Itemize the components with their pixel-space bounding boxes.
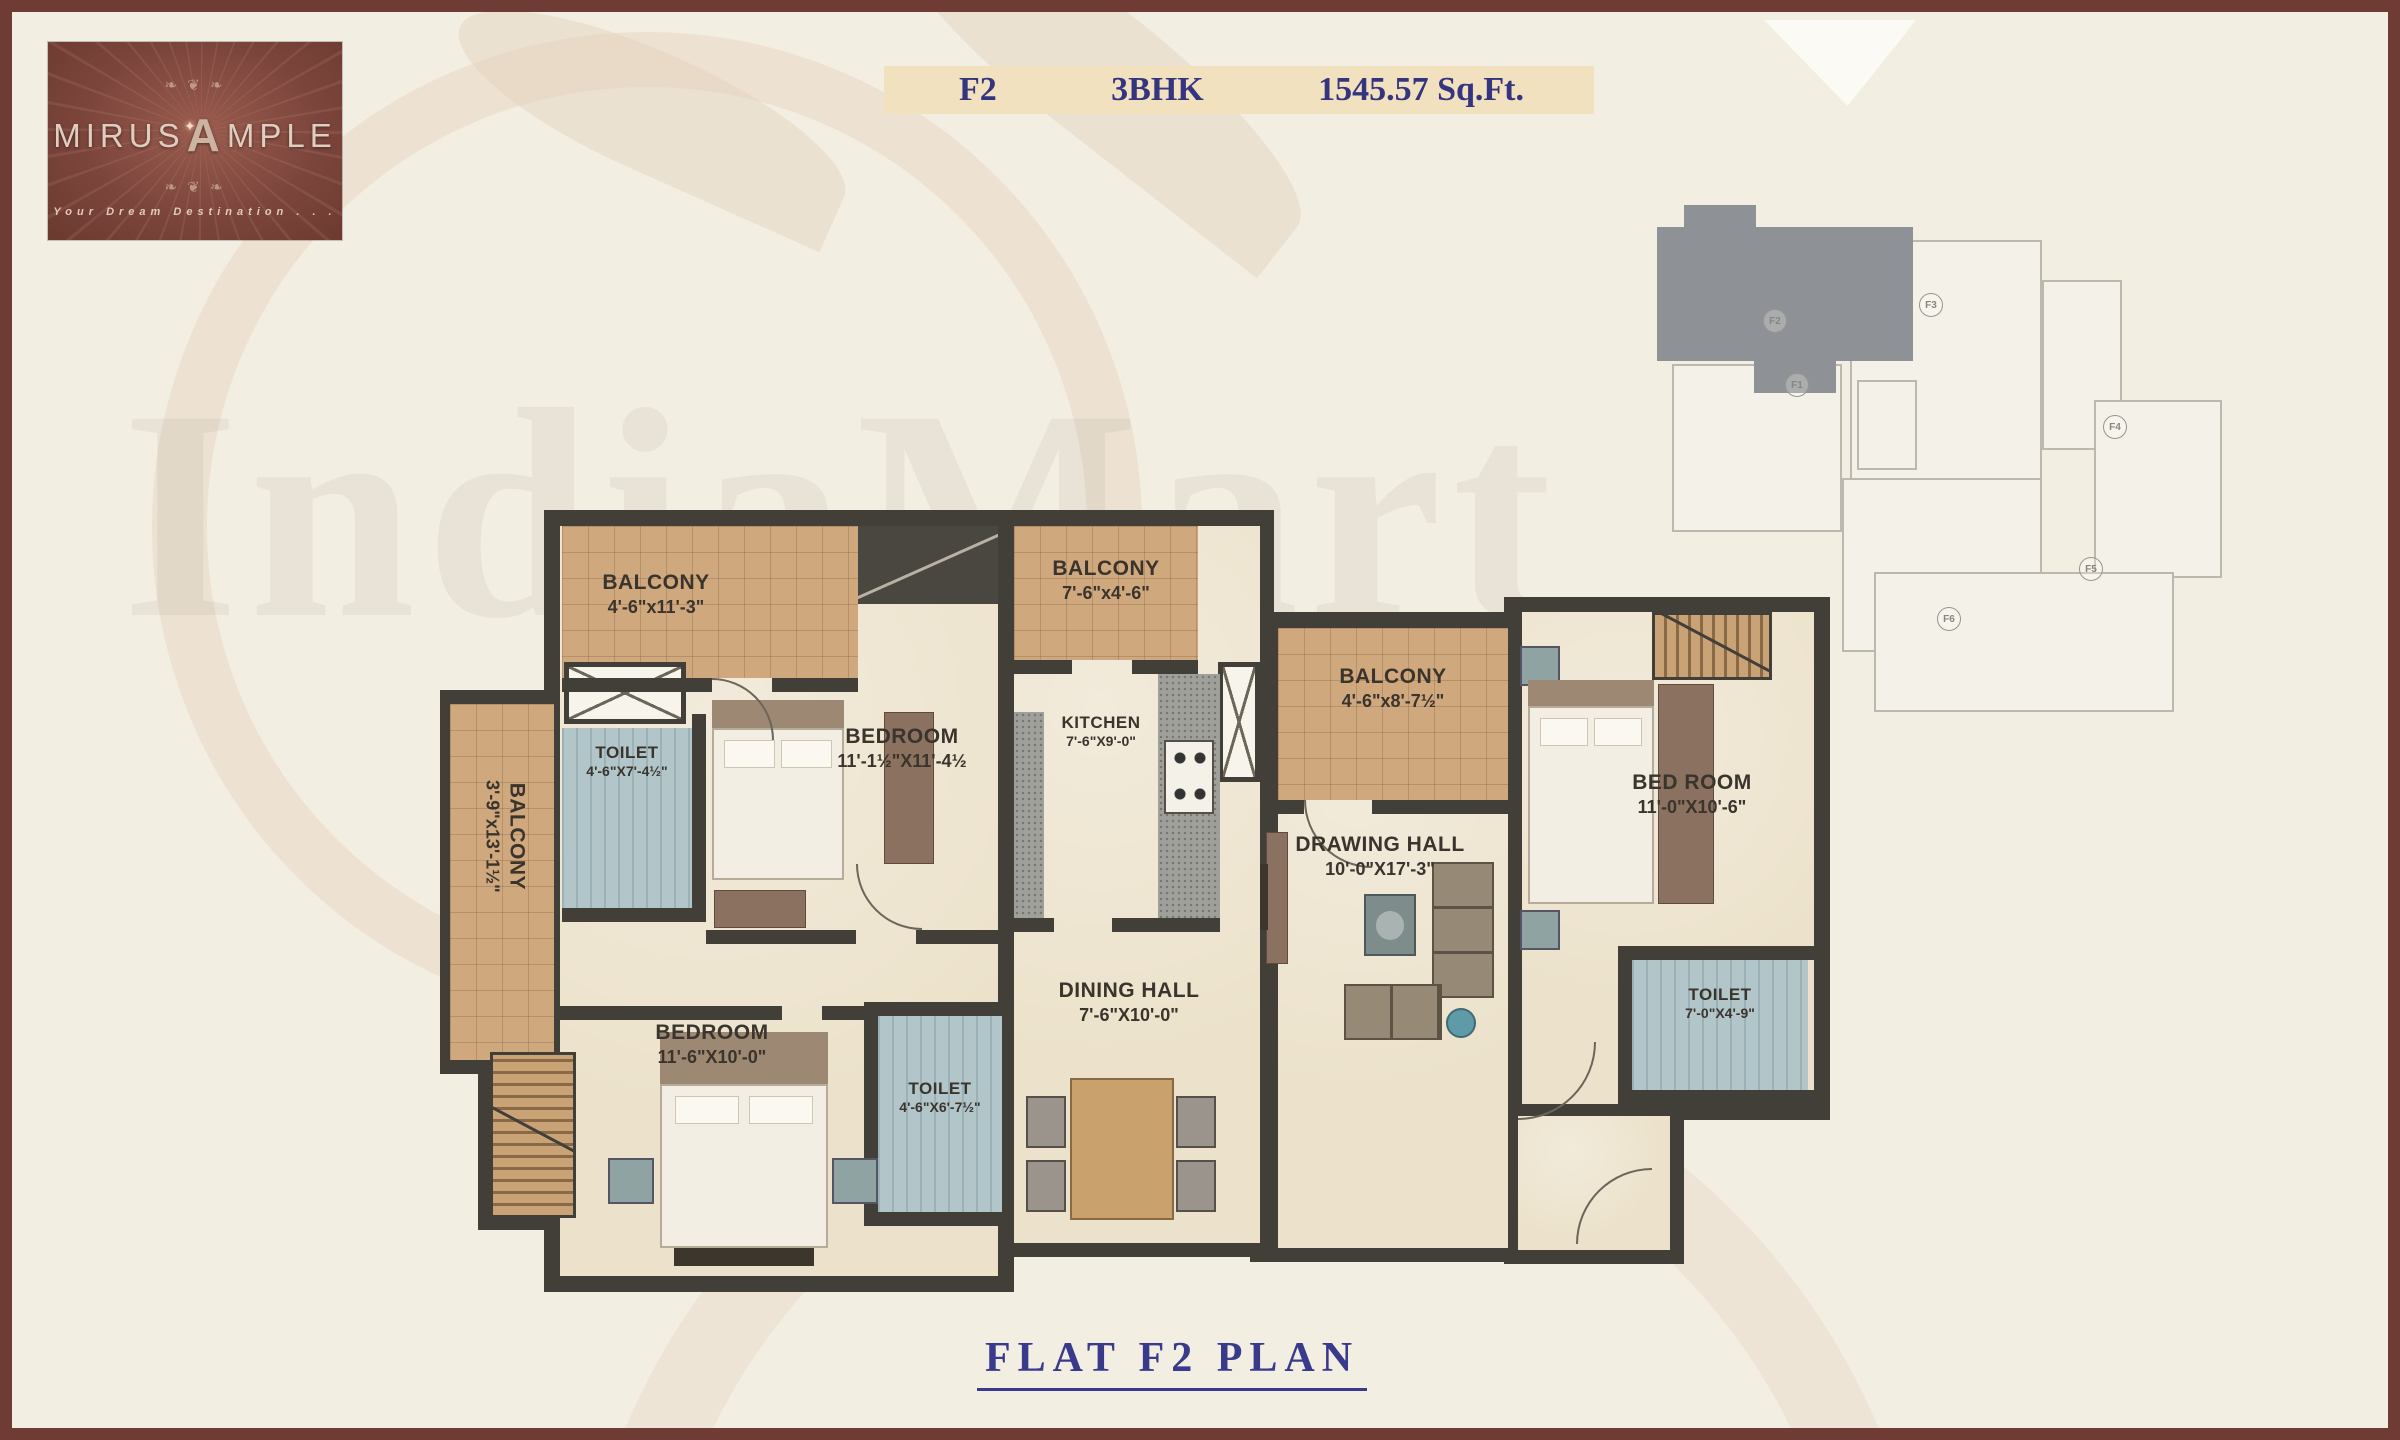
key-plan-unit-outline-f5: [1874, 572, 2174, 712]
staircase-top-right: [1652, 612, 1772, 680]
logo-brand-right: MPLE: [227, 117, 337, 155]
bed-footboard-bl: [674, 1248, 814, 1266]
logo-tagline: Your Dream Destination . . .: [48, 206, 342, 218]
key-plan-highlight-f2-bump: [1684, 205, 1756, 229]
room-label-bedroom-bl: BEDROOM 11'-6"X10'-0": [612, 1020, 812, 1069]
room-label-drawing-hall: DRAWING HALL 10'-0"X17'-3": [1270, 832, 1490, 881]
brand-logo: ❧ ❦ ❧ MIRUSAMPLE ✦ ❧ ❦ ❧ Your Dream Dest…: [48, 42, 342, 240]
room-label-toilet-r: TOILET 7'-0"X4'-9": [1640, 984, 1800, 1023]
wall-bedroom-bl-top-a: [560, 1006, 782, 1020]
wall-bedroom-tl-bottom-a: [706, 930, 856, 944]
wall-balcony-tm-bottom-b: [1132, 660, 1198, 674]
shaft-x-kitchen: [1218, 662, 1260, 782]
duct-shaft-top: [858, 526, 998, 604]
wall-toilet-tl-bottom: [562, 908, 706, 922]
sofa-vertical: [1432, 862, 1494, 998]
room-label-kitchen: KITCHEN 7'-6"X9'-0": [1038, 712, 1164, 751]
room-label-bedroom-tl: BEDROOM 11'-1½"X11'-4½: [802, 724, 1002, 773]
room-label-bedroom-r: BED ROOM 11'-0"X10'-6": [1582, 770, 1802, 819]
room-label-toilet-b: TOILET 4'-6"X6'-7½": [878, 1078, 1002, 1117]
wall-toilet-tl-right: [692, 714, 706, 920]
page-canvas: IndiaMart ❧ ❦ ❧ MIRUSAMPLE ✦ ❧ ❦ ❧ Your …: [12, 12, 2388, 1428]
wall-toilet-b-bottom: [864, 1212, 1002, 1226]
flat-area: 1545.57 Sq.Ft.: [1318, 71, 1524, 109]
room-label-balcony-tm: BALCONY 7'-6"x4'-6": [1022, 556, 1190, 605]
key-plan-label-f5: F5: [2079, 557, 2103, 581]
wall-kitchen-bottom-b: [1112, 918, 1220, 932]
room-label-dining-hall: DINING HALL 7'-6"X10'-0": [1024, 978, 1234, 1027]
plan-title-wrap: FLAT F2 PLAN: [892, 1334, 1452, 1391]
room-label-balcony-left: BALCONY 3'-9"x13'-1½": [481, 756, 530, 916]
sparkle-icon: ✦: [184, 118, 196, 135]
wall-balcony-tl-bottom-b: [772, 678, 858, 692]
key-plan-highlight-f2: [1657, 227, 1913, 361]
logo-brand-a: A: [187, 108, 225, 162]
key-plan-label-f3: F3: [1919, 293, 1943, 317]
sofa-horizontal: [1344, 984, 1442, 1040]
wall-toilet-r-bottom: [1632, 1090, 1814, 1104]
dining-table: [1070, 1078, 1174, 1220]
coffee-table: [1364, 894, 1416, 956]
side-table-bl-left: [608, 1158, 654, 1204]
wall-toilet-r-left: [1618, 960, 1632, 1104]
logo-brand-left: MIRUS: [53, 117, 184, 155]
room-label-toilet-tl: TOILET 4'-6"X7'-4½": [562, 742, 692, 781]
corner-fold-graphic: [1764, 20, 1916, 106]
dresser-top-left: [714, 890, 806, 928]
wall-balcony-tm-bottom-a: [1014, 660, 1072, 674]
key-plan-label-f2: F2: [1763, 309, 1787, 333]
kitchen-stove: [1164, 740, 1214, 814]
dining-chair-4: [1176, 1160, 1216, 1212]
logo-flourish-bottom: ❧ ❦ ❧: [48, 178, 342, 196]
key-plan-label-f4: F4: [2103, 415, 2127, 439]
wall-balcony-mr-bottom-a: [1278, 800, 1304, 814]
room-label-balcony-mr: BALCONY 4'-6"x8'-7½": [1298, 664, 1488, 713]
dining-chair-1: [1026, 1096, 1066, 1148]
shaft-x-left: [564, 662, 686, 724]
plan-title: FLAT F2 PLAN: [977, 1334, 1367, 1391]
side-round-table: [1446, 1008, 1476, 1038]
logo-flourish-top: ❧ ❦ ❧: [48, 76, 342, 94]
toilet-right-floor: [1632, 960, 1808, 1090]
key-plan-label-f1: F1: [1785, 373, 1809, 397]
tv-screen: [1260, 864, 1268, 930]
flat-type: 3BHK: [1111, 71, 1204, 109]
staircase-bottom-left: [490, 1052, 576, 1218]
flat-code: F2: [959, 71, 997, 109]
key-plan-label-f6: F6: [1937, 607, 1961, 631]
wall-bedroom-tl-bottom-b: [916, 930, 998, 944]
wall-toilet-b-top: [864, 1002, 1002, 1016]
room-label-balcony-tl: BALCONY 4'-6"x11'-3": [568, 570, 744, 619]
balcony-mid-right: [1278, 628, 1508, 800]
wall-balcony-mr-bottom-b: [1372, 800, 1508, 814]
bed-headboard-r: [1528, 680, 1654, 706]
wall-balcony-tl-bottom-a: [562, 678, 712, 692]
wall-kitchen-bottom-a: [1014, 918, 1054, 932]
dining-chair-3: [1176, 1096, 1216, 1148]
flat-header-bar: F2 3BHK 1545.57 Sq.Ft.: [884, 66, 1594, 114]
wall-toilet-r-top: [1618, 946, 1814, 960]
dining-chair-2: [1026, 1160, 1066, 1212]
side-table-bl-right: [832, 1158, 878, 1204]
side-table-r-bottom: [1520, 910, 1560, 950]
bed-bottom-left: [660, 1084, 828, 1248]
key-plan-unit-outline-notch: [1857, 380, 1917, 470]
